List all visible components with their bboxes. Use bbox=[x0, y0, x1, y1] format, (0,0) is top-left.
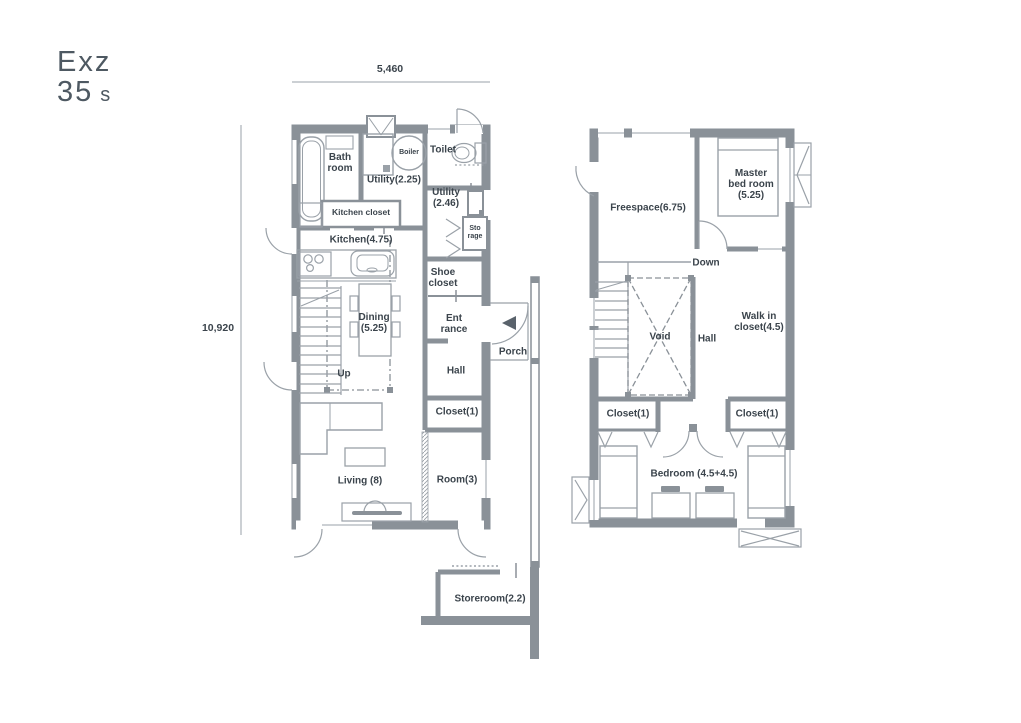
room-label-storage: Sto rage bbox=[468, 225, 483, 241]
entrance-arrow-icon bbox=[502, 316, 516, 330]
room-label-freespace: Freespace(6.75) bbox=[610, 202, 686, 213]
storeroom-structure bbox=[421, 563, 539, 659]
room-label-living: Living (8) bbox=[338, 475, 382, 486]
balcony-bottom-right bbox=[739, 529, 801, 547]
room-label-walk-in-closet: Walk in closet(4.5) bbox=[734, 311, 783, 333]
tv-icon bbox=[342, 501, 411, 521]
dimension-height-label: 10,920 bbox=[202, 322, 234, 334]
room-label-utility-246: Utility (2.46) bbox=[432, 187, 460, 209]
room-label-bedroom: Bedroom (4.5+4.5) bbox=[651, 468, 738, 479]
desk-left-icon bbox=[652, 486, 690, 518]
dimension-width-label: 5,460 bbox=[377, 63, 403, 75]
room-label-bathroom: Bath room bbox=[328, 152, 353, 174]
desk-right-icon bbox=[696, 486, 734, 518]
sofa-icon bbox=[300, 403, 382, 454]
room-label-void: Void bbox=[650, 331, 671, 342]
room-label-utility-225: Utility(2.25) bbox=[367, 174, 421, 185]
room-label-boiler: Boiler bbox=[399, 149, 419, 157]
stairs-second-floor bbox=[595, 262, 628, 395]
room-label-kitchen: Kitchen(4.75) bbox=[330, 234, 393, 245]
room-label-closet-1f: Closet(1) bbox=[436, 406, 479, 417]
room-label-storeroom: Storeroom(2.2) bbox=[454, 593, 525, 604]
floorplan-linework bbox=[0, 0, 1021, 723]
room-label-closet-right: Closet(1) bbox=[736, 408, 779, 419]
bathtub-icon bbox=[299, 137, 324, 221]
room-label-room3: Room(3) bbox=[437, 474, 478, 485]
kitchen-counter-icon bbox=[297, 250, 396, 281]
bath-counter-icon bbox=[326, 136, 353, 149]
floorplan-page: Exz 35s bbox=[0, 0, 1021, 723]
room-label-hall-2f: Hall bbox=[698, 333, 716, 344]
room-label-toilet: Toilet bbox=[430, 144, 456, 155]
room-label-entrance: Ent rance bbox=[441, 313, 468, 335]
room-label-closet-left: Closet(1) bbox=[607, 408, 650, 419]
room-label-kitchen-closet: Kitchen closet bbox=[332, 208, 390, 218]
room-label-master-bedroom: Master bed room (5.25) bbox=[728, 168, 774, 202]
room-label-hall-1f: Hall bbox=[447, 365, 465, 376]
toilet-icon bbox=[452, 143, 486, 163]
coffee-table-icon bbox=[345, 448, 385, 466]
room-label-porch: Porch bbox=[499, 346, 527, 357]
room-label-dining: Dining (5.25) bbox=[358, 312, 389, 334]
second-floor-plan bbox=[572, 129, 811, 548]
balcony-bottom-left bbox=[572, 477, 589, 523]
room-label-up: Up bbox=[337, 368, 350, 379]
balcony-top-right bbox=[794, 143, 811, 207]
bed-left-icon bbox=[600, 446, 637, 518]
first-floor-plan bbox=[264, 109, 539, 659]
room-label-down: Down bbox=[692, 257, 719, 268]
bed-right-icon bbox=[748, 446, 785, 518]
washing-machine-icon bbox=[363, 134, 393, 175]
room-label-shoe-closet: Shoe closet bbox=[429, 267, 458, 289]
stairs-first-floor bbox=[299, 286, 341, 395]
